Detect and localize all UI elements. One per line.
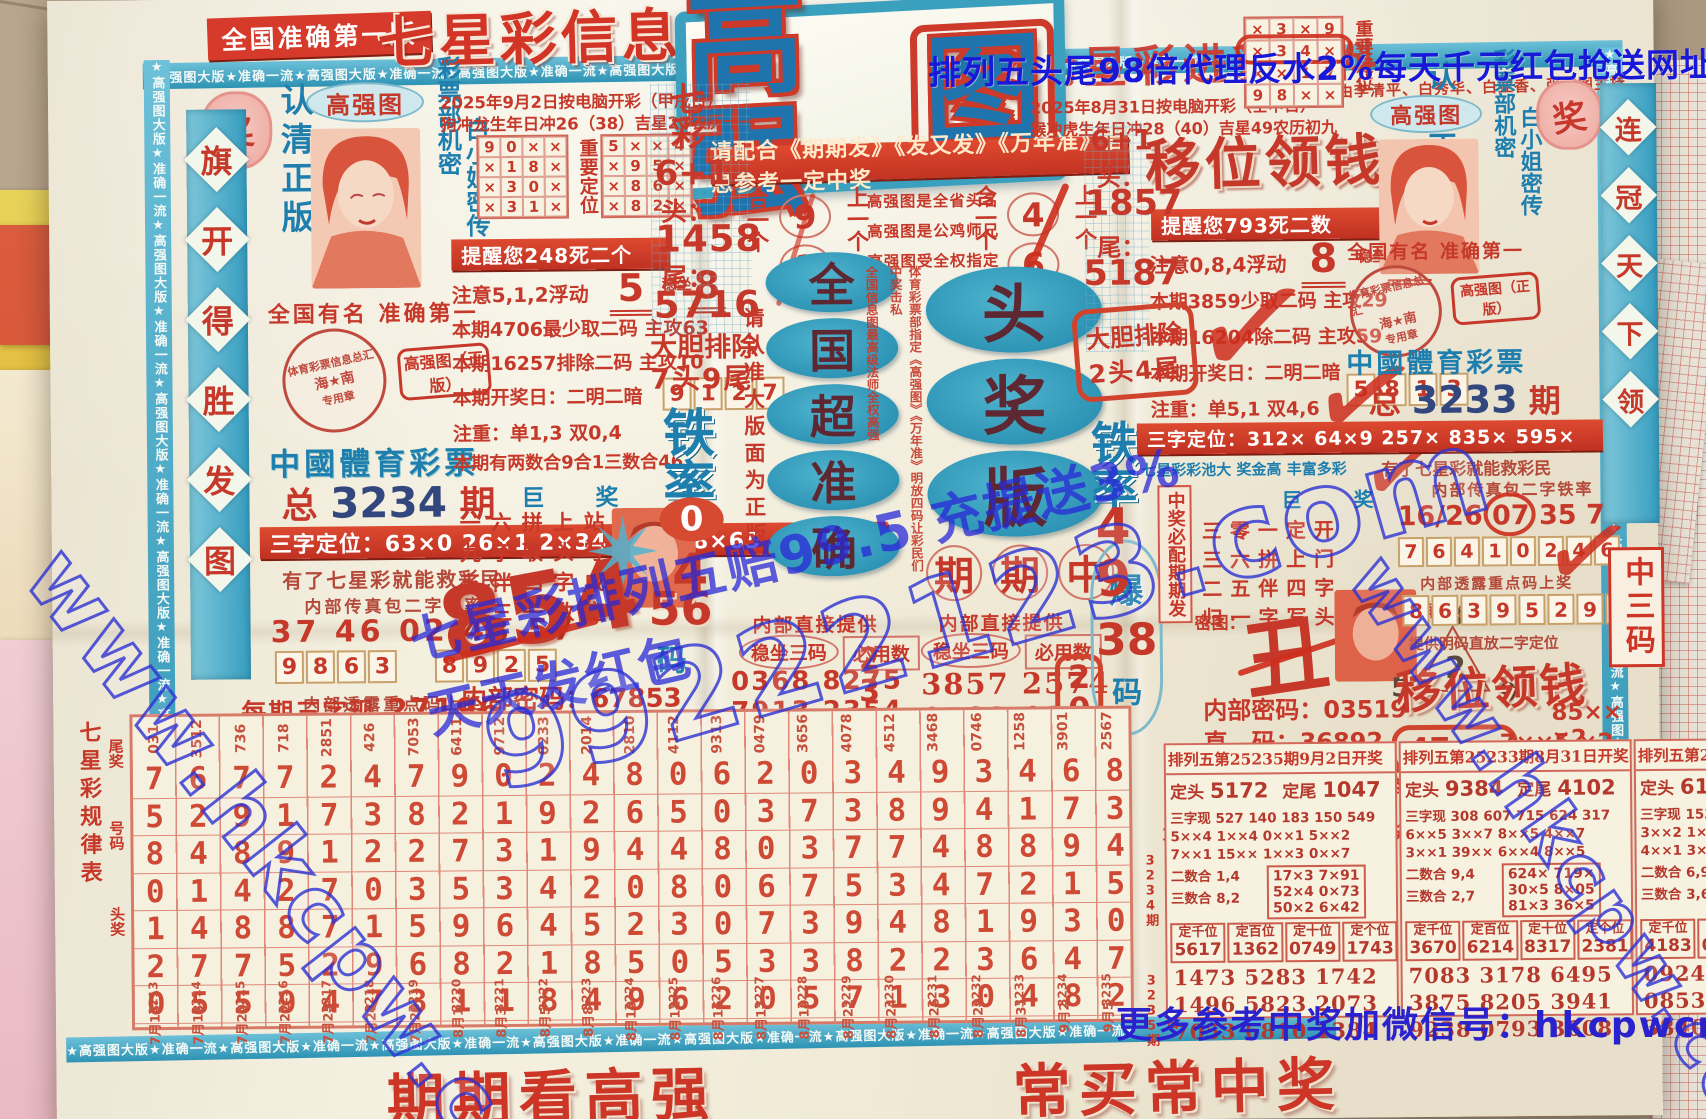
watermark-contact: 更多参考中奖加微信号：hkcpwcn (1116, 996, 1706, 1048)
panel-head-tail: 定头 5172 定尾 1047 (1166, 773, 1395, 806)
panel-two-sum: 二数合 6,9 (1637, 859, 1706, 882)
panel-threes: 三字现 153 149 803 126 309 (1636, 800, 1706, 824)
panel-two-sum: 二数合 1,4 (1167, 863, 1263, 886)
notice-1: 注意5,1,2浮动 (452, 278, 589, 308)
panel-box: 17×3 7×9152×4 0×7350×2 6×42 (1267, 865, 1366, 920)
panel-three-sum: 三数合 2,7 (1402, 883, 1498, 906)
prize-lantern-icon-right: 奖 (1536, 79, 1603, 150)
watermark-top-ad: 排列五头尾98倍代理反水2%每天千元红包抢送网址66373.com (928, 38, 1706, 94)
sport-lottery-label-right: 中國體育彩票 (1346, 340, 1526, 381)
position-grid-left: 90×××18××30××31× (476, 134, 569, 219)
six-plus-one-right: 6+1 (1090, 123, 1153, 157)
combo-digit-circle: 9 (779, 194, 831, 238)
gaoqiangtu-oval: 高强图 (306, 82, 424, 123)
big-digit-8r: 8 (1301, 236, 1345, 288)
notice-5: 注重：单1,3 双0,4 (453, 418, 622, 446)
banner-char: 得 (202, 296, 234, 342)
issue-number: 3234 (330, 478, 447, 528)
inner-code-right: 内部密码：03519 (1203, 689, 1407, 726)
six-plus-one: 6+1 (654, 153, 730, 194)
bottom-slogan-2: 常买常中奖 (1012, 1037, 1344, 1119)
head-value-right: 1857 (1085, 183, 1183, 224)
portrait-photo (310, 128, 421, 289)
banner-diamond: 得 (185, 287, 250, 352)
genuine-side-note: 请认准大版面为正版 (738, 307, 770, 550)
famous-line: 全国有名 准确第一 (268, 295, 479, 329)
notice-4: 本期开奖日：二明二暗 (452, 382, 642, 411)
panel-combo-2: 7××1 15×× 1××3 0××7 (1167, 844, 1396, 864)
leak-label-right: 内部透露重点码上奖 (1420, 572, 1573, 594)
photo-scene: ★高强图大版★准确一流★高强图大版★准确一流★高强图大版★准确一流★高强图大版★… (0, 0, 1706, 1119)
panel-head-tail: 定头 6134 定尾 1507 (1636, 769, 1706, 802)
panel-combo-1: 3××2 1××8 6××5 4××2 (1636, 822, 1706, 842)
banner-diamond: 开 (185, 207, 250, 272)
combo-digit-circle: 4 (1007, 192, 1059, 236)
qicai-label: 七彩 (660, 81, 710, 149)
issue-prefix: 总 (281, 486, 317, 527)
panel-numbers: 1473 5283 1742 (1168, 963, 1397, 992)
banner-diamond: 旗 (184, 127, 249, 192)
official-stamp: 体育彩票信息总汇 海★南 专用章 (272, 319, 396, 443)
middle-three-code-label: 中三码 (1608, 547, 1665, 667)
panel-title: 排列五第25235期9月2日开奖 (1166, 743, 1395, 775)
banner-diamond: 胜 (186, 367, 251, 432)
remind-bar-right: 提醒您793死二数 (1151, 207, 1399, 240)
bold-exclude-box-right: 大胆排除 2头4尾 (1071, 301, 1200, 403)
right-flag-banner: 连冠天下领 (1600, 83, 1660, 523)
banner-char: 胜 (202, 376, 234, 422)
banner-char: 开 (201, 216, 233, 262)
genuine-box-right: 高强图（正版） (1450, 271, 1541, 326)
banner-char: 发 (203, 456, 235, 502)
left-flag-banner: 旗开得胜发图 (186, 109, 251, 680)
grid-middle-label: 重要定位 (574, 138, 602, 214)
cooperate-notice: 请配合《期期发》《发又发》《万年准》信息参考一定中奖 (710, 135, 1129, 184)
panel-two-sum: 二数合 9,4 (1402, 861, 1498, 884)
boxed-number-9863: 9863 (275, 650, 399, 684)
rule-table-label-3: 头奖 (107, 906, 128, 936)
banner-char: 旗 (200, 136, 232, 182)
panel-threes: 三字现 527 140 183 150 549 (1166, 804, 1395, 828)
rule-table-title: 七星彩规律表 (71, 721, 104, 889)
rule-table-label-2: 号码 (106, 820, 127, 850)
panel-title: 排列五第25231期8月29日开奖 (1636, 739, 1706, 771)
banner-char: 图 (204, 536, 236, 582)
table-issue-date: 3213321432153216321732183219322032213222… (132, 978, 1134, 1041)
panel-combo-2: 4××1 3××6 0××9 1××7 (1637, 840, 1706, 860)
paili5-panel: 排列五第25235期9月2日开奖 定头 5172 定尾 1047 三字现 527… (1164, 741, 1399, 1019)
notice-6: 本期有两数合9合1三数合46 (453, 447, 683, 475)
big-digit-5: 5 (609, 266, 652, 316)
gaoqiangtu-oval-right: 高强图 (1370, 95, 1482, 134)
panel-three-sum: 三数合 8,2 (1167, 885, 1263, 908)
banner-diamond: 发 (187, 447, 252, 512)
famous-line-right: 全国有名 准确第一 (1347, 236, 1524, 265)
banner-diamond: 图 (187, 527, 252, 592)
tail-value-right: 5187 (1083, 253, 1181, 294)
rc-notice-5: 注重：单5,1 双4,6 (1151, 394, 1320, 422)
panel-combo-1: 5××4 1××4 0××1 5××2 (1166, 826, 1395, 846)
